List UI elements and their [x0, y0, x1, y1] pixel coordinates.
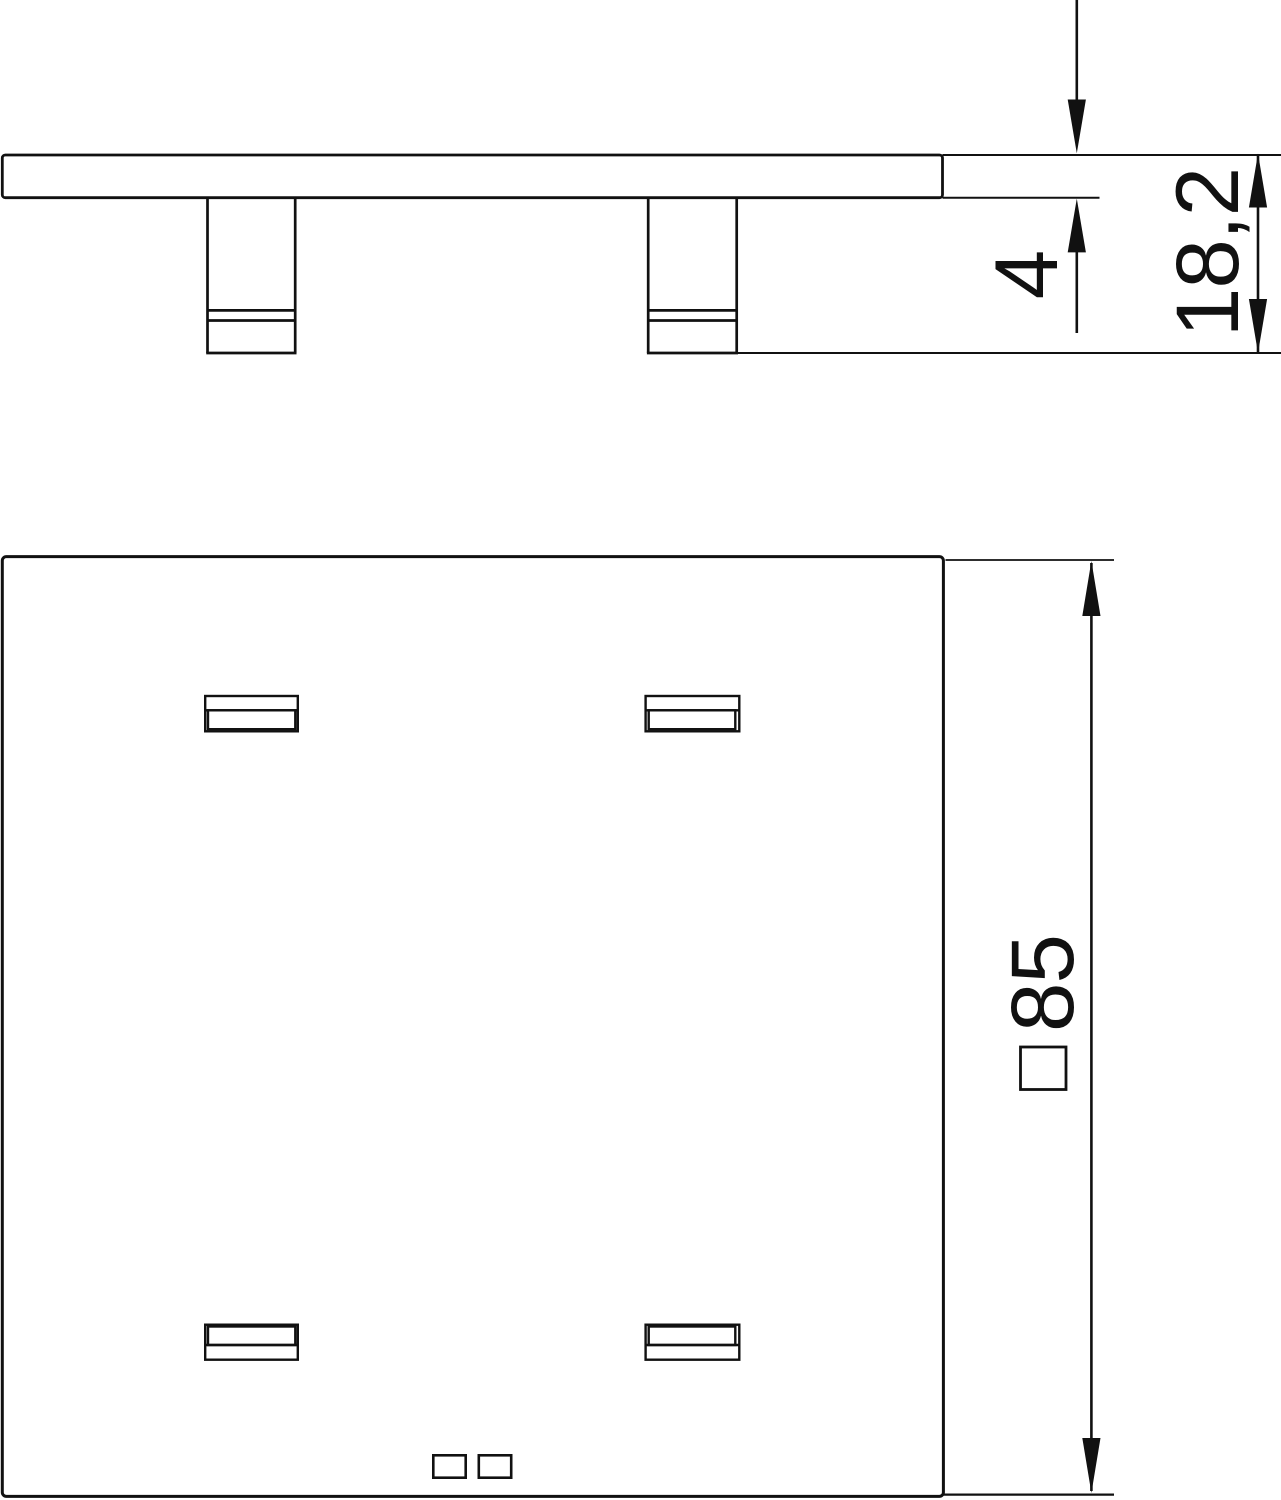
svg-text:85: 85	[992, 935, 1092, 1032]
svg-text:18,2: 18,2	[1157, 168, 1257, 337]
svg-text:4: 4	[976, 251, 1076, 300]
